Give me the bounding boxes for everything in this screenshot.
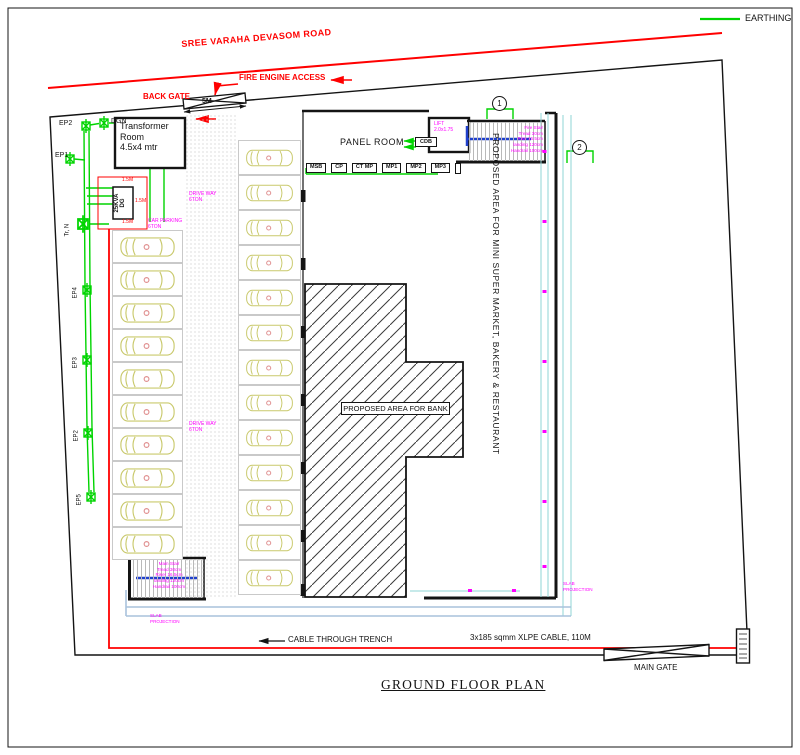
page-title: GROUND FLOOR PLAN (381, 677, 545, 693)
ground-floor-plan: EARTHING SREE VARAHA DEVASOM ROAD FIRE E… (0, 0, 800, 755)
tr-n-label: Tr, N (64, 211, 71, 237)
panel-room-label: PANEL ROOM (340, 137, 404, 148)
parking-stall (238, 175, 301, 210)
slab-projection-left: SLAB PROJECTION (150, 613, 180, 624)
parking-stall (112, 329, 183, 362)
parking-stall (112, 296, 183, 329)
grid-marker-1: 1 (492, 96, 507, 111)
car-icon (119, 268, 176, 292)
parking-stall (238, 350, 301, 385)
car-icon (119, 367, 176, 391)
parking-stall (238, 280, 301, 315)
car-icon (245, 320, 294, 346)
fire-engine-access-label: FIRE ENGINE ACCESS (239, 73, 325, 82)
parking-stall (238, 490, 301, 525)
drive-way-label-top: DRIVE WAY 6TON (189, 192, 217, 204)
earthing-legend-label: EARTHING (745, 13, 791, 24)
parking-stall (112, 527, 183, 560)
car-icon (245, 250, 294, 276)
parking-stall (112, 428, 183, 461)
lift-label: LIFT 2.0x1.75 (434, 122, 453, 134)
grid-marker-2: 2 (572, 140, 587, 155)
dg-dim-top: 1.5M (122, 178, 133, 184)
parking-stall (238, 560, 301, 595)
parking-stall (112, 395, 183, 428)
drive-way-label-bottom: DRIVE WAY 6TON (189, 422, 217, 434)
ep5-label: EP5 (76, 484, 83, 506)
parking-stall (238, 525, 301, 560)
drive-way-area (185, 114, 236, 597)
car-icon (119, 466, 176, 490)
cdb-box: CDB (415, 137, 437, 147)
car-icon (119, 400, 176, 424)
panel-box: MP3 (431, 163, 450, 173)
car-icon (245, 355, 294, 381)
car-icon (119, 499, 176, 523)
parking-stall (238, 385, 301, 420)
parking-stall (238, 420, 301, 455)
transformer-room-label: Transformer Room 4.5x4 mtr (120, 121, 182, 153)
car-icon (245, 215, 294, 241)
car-parking-label: CAR PARKING 6TON (148, 219, 182, 231)
main-gate-label: MAIN GATE (634, 663, 677, 672)
column-ticks (468, 150, 547, 592)
parking-stall (238, 140, 301, 175)
ep4-label: EP4 (72, 277, 79, 299)
main-gate-symbol (604, 645, 709, 661)
road-line (48, 33, 722, 88)
car-icon (119, 235, 176, 259)
security-post (737, 629, 750, 663)
dg-dim-right: 1.5M (135, 199, 146, 205)
car-icon (245, 565, 294, 591)
parking-stall (112, 494, 183, 527)
car-icon (245, 425, 294, 451)
parking-stall (112, 362, 183, 395)
car-icon (119, 532, 176, 556)
back-gate-width: 5M (202, 98, 212, 106)
dg-label: 25KVA DG (114, 186, 132, 220)
parking-stall (238, 245, 301, 280)
panel-box: CT MP (352, 163, 377, 173)
panel-box: MSB (306, 163, 326, 173)
parking-stall (112, 230, 183, 263)
car-icon (119, 334, 176, 358)
parking-stall (238, 455, 301, 490)
parking-stall (238, 315, 301, 350)
dg-dim-bottom: 1.5M (122, 220, 133, 226)
panel-row: MSBCPCT MPMP1MP2MP3 (306, 163, 461, 174)
panel-box-empty (455, 163, 461, 174)
panel-box: MP2 (406, 163, 425, 173)
ep2-top-label: EP2 (59, 120, 72, 128)
bank-area-label: PROPOSED AREA FOR BANK (341, 402, 450, 415)
car-icon (119, 433, 176, 457)
slab-projection-right: SLAB PROJECTION (563, 581, 593, 592)
xlpe-cable-label: 3x185 sqmm XLPE CABLE, 110M (470, 633, 591, 642)
ep2-label: EP2 (73, 420, 80, 442)
parking-stall (238, 210, 301, 245)
fire-stair-note: Fire Stair Tread 30cm Rise 16.5cm landin… (497, 125, 543, 154)
earth-electrode (82, 119, 90, 133)
panel-box: MP1 (382, 163, 401, 173)
ep1-label: EP1 (55, 152, 68, 160)
panel-box: CP (331, 163, 347, 173)
car-icon (245, 390, 294, 416)
car-icon (245, 285, 294, 311)
car-icon (245, 145, 294, 171)
back-gate-label: BACK GATE (143, 92, 190, 101)
car-icon (245, 180, 294, 206)
bank-area-hatch (305, 284, 463, 597)
car-icon (245, 495, 294, 521)
main-stair-note: Main Stair Tread 30cm Riser 16.5cm landi… (140, 561, 198, 590)
parking-stall (112, 461, 183, 494)
ep3-label: EP3 (72, 347, 79, 369)
market-area-label: PROPOSED AREA FOR MINI SUPER MARKET, BAK… (491, 133, 501, 573)
cable-trench-label: CABLE THROUGH TRENCH (288, 635, 392, 644)
dgn-label: DGN (111, 118, 127, 126)
car-icon (245, 530, 294, 556)
parking-stall (112, 263, 183, 296)
car-icon (119, 301, 176, 325)
car-icon (245, 460, 294, 486)
